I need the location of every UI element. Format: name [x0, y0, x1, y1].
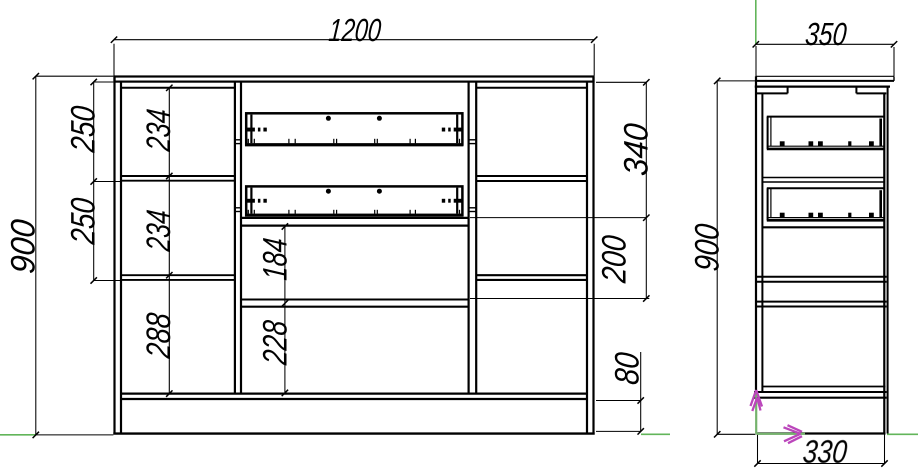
- svg-text:900: 900: [689, 222, 727, 272]
- svg-text:330: 330: [801, 434, 848, 470]
- svg-text:80: 80: [609, 351, 647, 386]
- svg-text:900: 900: [5, 218, 43, 275]
- svg-text:350: 350: [804, 16, 848, 52]
- svg-text:340: 340: [618, 122, 656, 177]
- svg-text:184: 184: [257, 236, 295, 281]
- svg-text:234: 234: [140, 208, 178, 253]
- svg-text:228: 228: [257, 319, 295, 367]
- svg-text:1200: 1200: [327, 12, 382, 48]
- svg-text:250: 250: [65, 196, 103, 246]
- svg-text:250: 250: [65, 104, 103, 154]
- svg-text:288: 288: [140, 311, 178, 360]
- svg-text:234: 234: [140, 107, 178, 153]
- svg-text:200: 200: [596, 234, 634, 285]
